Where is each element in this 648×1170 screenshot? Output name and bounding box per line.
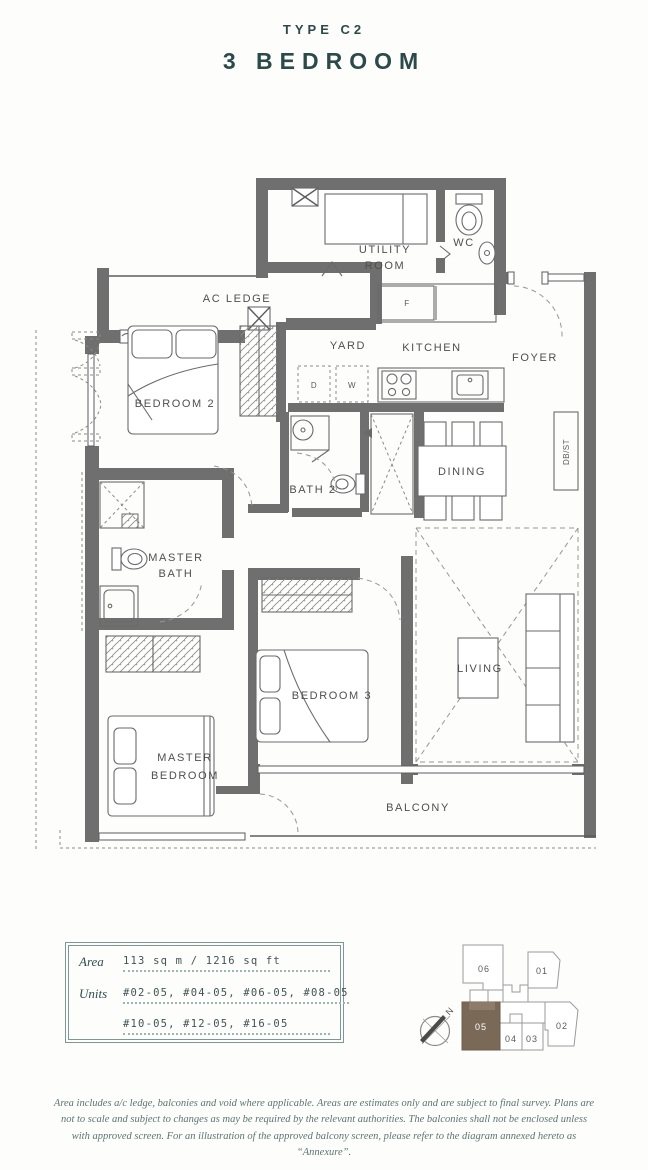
chair-icon	[424, 494, 446, 520]
shaft-icon	[292, 188, 318, 206]
units-label: Units	[79, 986, 123, 1004]
area-row: Area 113 sq m / 1216 sq ft	[79, 954, 330, 972]
wc-fixtures	[440, 194, 495, 264]
units-value-line1: #02-05, #04-05, #06-05, #08-05	[123, 987, 349, 1004]
wardrobe-icon	[106, 636, 200, 672]
compass-north-label: N	[444, 1005, 456, 1017]
room-label-bedroom3: BEDROOM 3	[292, 690, 372, 702]
unit-number-03: 03	[526, 1034, 538, 1044]
room-label-wc: WC	[453, 237, 475, 249]
bedroom3-furniture	[256, 578, 400, 742]
core-block	[470, 990, 488, 1002]
core-block	[500, 1002, 545, 1023]
chair-icon	[452, 422, 474, 448]
wardrobe-icon	[262, 578, 352, 612]
core-block	[503, 985, 528, 1002]
room-label-utility-1: UTILITY	[359, 244, 411, 256]
appliance-label-fridge: F	[404, 299, 409, 308]
sofa-icon	[526, 594, 574, 742]
wardrobe-icon	[240, 326, 278, 416]
room-label-bath2: BATH 2	[289, 484, 336, 496]
area-value: 113 sq m / 1216 sq ft	[123, 955, 330, 972]
bed-icon	[108, 716, 214, 816]
unit-number-04: 04	[505, 1034, 517, 1044]
disclaimer-text: Area includes a/c ledge, balconies and v…	[52, 1096, 597, 1161]
shower-icon	[100, 482, 144, 528]
room-label-ac-ledge: AC LEDGE	[203, 293, 271, 305]
room-label-bedroom2: BEDROOM 2	[135, 398, 215, 410]
unit-locator-diagram: 06 01 05 04 03 02 N	[420, 945, 578, 1050]
closet-icon	[371, 414, 413, 514]
yard-appliances	[298, 366, 368, 402]
balcony-door-arc	[260, 794, 298, 832]
room-label-foyer: FOYER	[512, 352, 558, 364]
toilet-icon	[112, 548, 147, 570]
units-value-line2: #10-05, #12-05, #16-05	[123, 1018, 330, 1035]
room-label-yard: YARD	[330, 340, 366, 352]
chair-icon	[452, 494, 474, 520]
room-label-kitchen: KITCHEN	[402, 342, 461, 354]
floor-plan: AC LEDGE UTILITY ROOM WC YARD KITCHEN FO…	[36, 178, 596, 852]
area-units-box-inner: Area 113 sq m / 1216 sq ft Units #02-05,…	[68, 945, 341, 1040]
room-label-utility-2: ROOM	[365, 260, 406, 272]
chair-icon	[480, 422, 502, 448]
room-label-master-bedroom-1: MASTER	[157, 752, 212, 764]
master-bedroom-furniture	[106, 636, 214, 816]
entrance-door	[508, 272, 562, 338]
floorplan-page: TYPE C2 3 BEDROOM	[0, 0, 648, 1170]
bed-icon	[128, 326, 218, 434]
room-label-master-bath-2: BATH	[159, 568, 194, 580]
room-label-dining: DINING	[438, 466, 486, 478]
unit-number-05: 05	[475, 1022, 487, 1032]
bath2-fixtures	[291, 416, 372, 494]
units-row-2: #10-05, #12-05, #16-05	[79, 1018, 330, 1035]
unit-number-02: 02	[556, 1021, 568, 1031]
room-label-master-bedroom-2: BEDROOM	[151, 770, 219, 782]
area-label: Area	[79, 954, 123, 972]
compass-icon: N	[420, 1005, 456, 1046]
toilet-icon	[456, 194, 482, 235]
basin-icon	[479, 242, 495, 264]
chair-icon	[480, 494, 502, 520]
sink-icon	[452, 371, 488, 399]
unit-number-01: 01	[536, 966, 548, 976]
shower-icon	[291, 416, 329, 462]
appliance-label-washer: W	[348, 381, 356, 390]
units-label-spacer	[79, 1033, 123, 1035]
room-label-living: LIVING	[457, 663, 503, 675]
room-label-master-bath-1: MASTER	[148, 552, 203, 564]
chair-icon	[424, 422, 446, 448]
appliance-label-dryer: D	[311, 381, 317, 390]
living-furniture	[416, 528, 578, 762]
area-units-box: Area 113 sq m / 1216 sq ft Units #02-05,…	[65, 942, 344, 1043]
stove-icon	[382, 371, 416, 399]
unit-number-06: 06	[478, 964, 490, 974]
room-label-balcony: BALCONY	[386, 802, 450, 814]
units-row-1: Units #02-05, #04-05, #06-05, #08-05	[79, 986, 330, 1004]
room-label-dbst: DB/ST	[562, 439, 571, 465]
